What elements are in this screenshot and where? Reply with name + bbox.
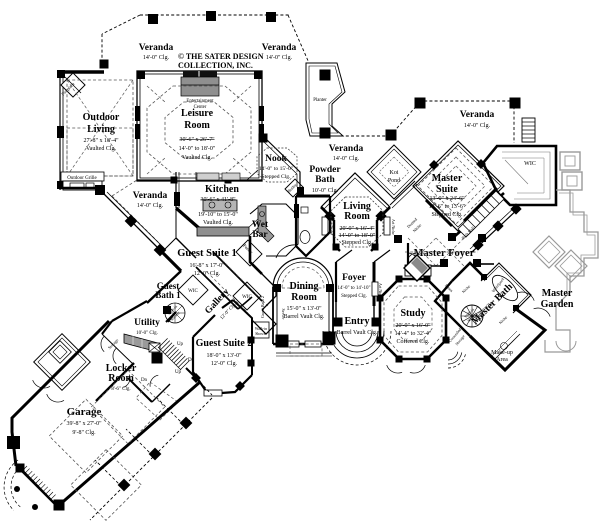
svg-text:39'-8" x 27'-0": 39'-8" x 27'-0" — [66, 421, 102, 427]
svg-text:Garden: Garden — [541, 299, 574, 310]
svg-text:Guest Suite 2: Guest Suite 2 — [196, 338, 253, 349]
svg-text:Garage: Garage — [67, 406, 102, 418]
svg-text:Stepped Clg.: Stepped Clg. — [432, 212, 463, 218]
svg-text:Master: Master — [432, 173, 463, 184]
svg-text:14'-0" Clg.: 14'-0" Clg. — [143, 55, 170, 61]
svg-text:Coffered Clg.: Coffered Clg. — [397, 338, 430, 345]
svg-text:Art Niche: Art Niche — [391, 219, 396, 235]
svg-text:14'-0" Clg.: 14'-0" Clg. — [266, 55, 293, 61]
svg-text:COLLECTION, INC.: COLLECTION, INC. — [178, 61, 253, 70]
svg-text:Room: Room — [108, 373, 134, 384]
svg-text:27'-8" x 18'-4": 27'-8" x 18'-4" — [83, 138, 119, 144]
svg-text:Kitchen: Kitchen — [205, 184, 239, 195]
svg-text:19'-10" to 15'-0": 19'-10" to 15'-0" — [198, 212, 238, 218]
svg-text:14'-0" to 18'-0": 14'-0" to 18'-0" — [339, 233, 376, 239]
svg-text:20'-0" x 16'-4": 20'-0" x 16'-4" — [339, 226, 375, 232]
svg-text:12'-0" Clg.: 12'-0" Clg. — [211, 361, 238, 367]
svg-text:Entry: Entry — [345, 316, 370, 327]
svg-text:9'-8" Clg.: 9'-8" Clg. — [72, 430, 96, 436]
svg-text:Stepped Clg.: Stepped Clg. — [341, 294, 367, 299]
svg-text:Wet: Wet — [252, 220, 269, 230]
svg-text:Outdoor Grille: Outdoor Grille — [67, 176, 97, 181]
svg-text:WIC: WIC — [242, 295, 252, 300]
svg-text:Veranda: Veranda — [139, 43, 174, 53]
svg-text:Bath 1: Bath 1 — [155, 290, 181, 300]
svg-text:18'-0" x 13'-0": 18'-0" x 13'-0" — [206, 353, 242, 359]
svg-text:Room: Room — [291, 292, 317, 303]
svg-text:Bar: Bar — [252, 230, 268, 240]
svg-text:Room: Room — [344, 211, 370, 222]
svg-text:Veranda: Veranda — [262, 43, 297, 53]
svg-text:Dining: Dining — [290, 281, 319, 292]
svg-text:8'-6" Clg.: 8'-6" Clg. — [111, 387, 130, 392]
svg-text:Dn: Dn — [141, 378, 148, 383]
svg-text:Outdoor: Outdoor — [83, 112, 120, 123]
svg-text:14'-0" Clg.: 14'-0" Clg. — [464, 123, 491, 129]
svg-text:15'-0" x 13'-0": 15'-0" x 13'-0" — [286, 306, 322, 312]
svg-text:Entertainment: Entertainment — [186, 99, 214, 104]
svg-text:Foyer: Foyer — [342, 273, 367, 283]
svg-text:Powder: Powder — [309, 165, 341, 175]
svg-text:Veranda: Veranda — [329, 144, 364, 154]
svg-text:Vaulted Clg.: Vaulted Clg. — [203, 220, 233, 226]
svg-text:Guest Bath 2: Guest Bath 2 — [260, 296, 265, 318]
svg-text:Art Niche: Art Niche — [329, 219, 334, 235]
svg-text:Master: Master — [542, 288, 573, 299]
svg-text:20'-0" x 16'-0": 20'-0" x 16'-0" — [395, 323, 431, 329]
svg-text:Guest Suite 1: Guest Suite 1 — [177, 248, 237, 259]
svg-text:Veranda: Veranda — [460, 110, 495, 120]
svg-text:Walk-in: Walk-in — [255, 327, 267, 331]
svg-text:WIC: WIC — [188, 289, 198, 294]
svg-text:Up: Up — [177, 342, 184, 347]
svg-text:Nook: Nook — [265, 154, 287, 164]
svg-text:14'-4" to 32'-4": 14'-4" to 32'-4" — [395, 331, 432, 337]
svg-text:14'-0" to 18'-0": 14'-0" to 18'-0" — [179, 146, 216, 152]
svg-text:Veranda: Veranda — [133, 191, 168, 201]
svg-text:Shower: Shower — [255, 332, 267, 336]
svg-text:Vaulted Clg.: Vaulted Clg. — [86, 146, 116, 152]
svg-text:30'-6" x 41'-8": 30'-6" x 41'-8" — [200, 197, 236, 203]
svg-text:Study: Study — [400, 308, 425, 319]
svg-text:Vaulted Clg.: Vaulted Clg. — [182, 155, 212, 161]
svg-text:16'-8" x 17'-0": 16'-8" x 17'-0" — [189, 263, 225, 269]
svg-text:14'-0" Clg.: 14'-0" Clg. — [333, 156, 360, 162]
svg-text:Koi: Koi — [390, 170, 399, 176]
svg-text:WIC: WIC — [524, 161, 536, 167]
svg-text:Stepped Clg.: Stepped Clg. — [262, 174, 292, 180]
svg-text:Room: Room — [184, 120, 210, 131]
svg-text:Living: Living — [87, 124, 115, 135]
svg-text:14'-0" to 15'-0": 14'-0" to 15'-0" — [259, 166, 293, 172]
svg-text:Planter: Planter — [313, 98, 327, 103]
svg-text:Leisure: Leisure — [181, 108, 214, 119]
svg-text:12'-6" to 13'-6": 12'-6" to 13'-6" — [429, 204, 466, 210]
svg-text:Make-up: Make-up — [491, 350, 513, 356]
svg-text:Dn: Dn — [188, 358, 195, 363]
svg-text:Area: Area — [496, 357, 508, 363]
svg-text:14'-0" Clg.: 14'-0" Clg. — [137, 203, 164, 209]
svg-text:Server: Server — [281, 309, 286, 321]
svg-text:Suite: Suite — [436, 184, 458, 195]
svg-text:30'-6" x 26'-7": 30'-6" x 26'-7" — [179, 137, 215, 143]
svg-text:10'-0" Clg.: 10'-0" Clg. — [136, 331, 158, 336]
svg-text:13'-0" x 24'-6": 13'-0" x 24'-6" — [429, 196, 465, 202]
svg-text:14'-0" to 14'-10": 14'-0" to 14'-10" — [337, 286, 370, 291]
svg-text:Stepped Clg.: Stepped Clg. — [342, 240, 373, 246]
svg-text:Art Niche: Art Niche — [378, 283, 383, 299]
svg-text:© THE SATER DESIGN: © THE SATER DESIGN — [178, 52, 264, 61]
svg-text:Up: Up — [175, 370, 182, 375]
svg-text:Pond: Pond — [388, 178, 400, 184]
svg-text:Utility: Utility — [134, 318, 160, 328]
svg-text:Bath: Bath — [315, 175, 335, 185]
svg-text:Barrel Vault Clg.: Barrel Vault Clg. — [284, 314, 325, 320]
